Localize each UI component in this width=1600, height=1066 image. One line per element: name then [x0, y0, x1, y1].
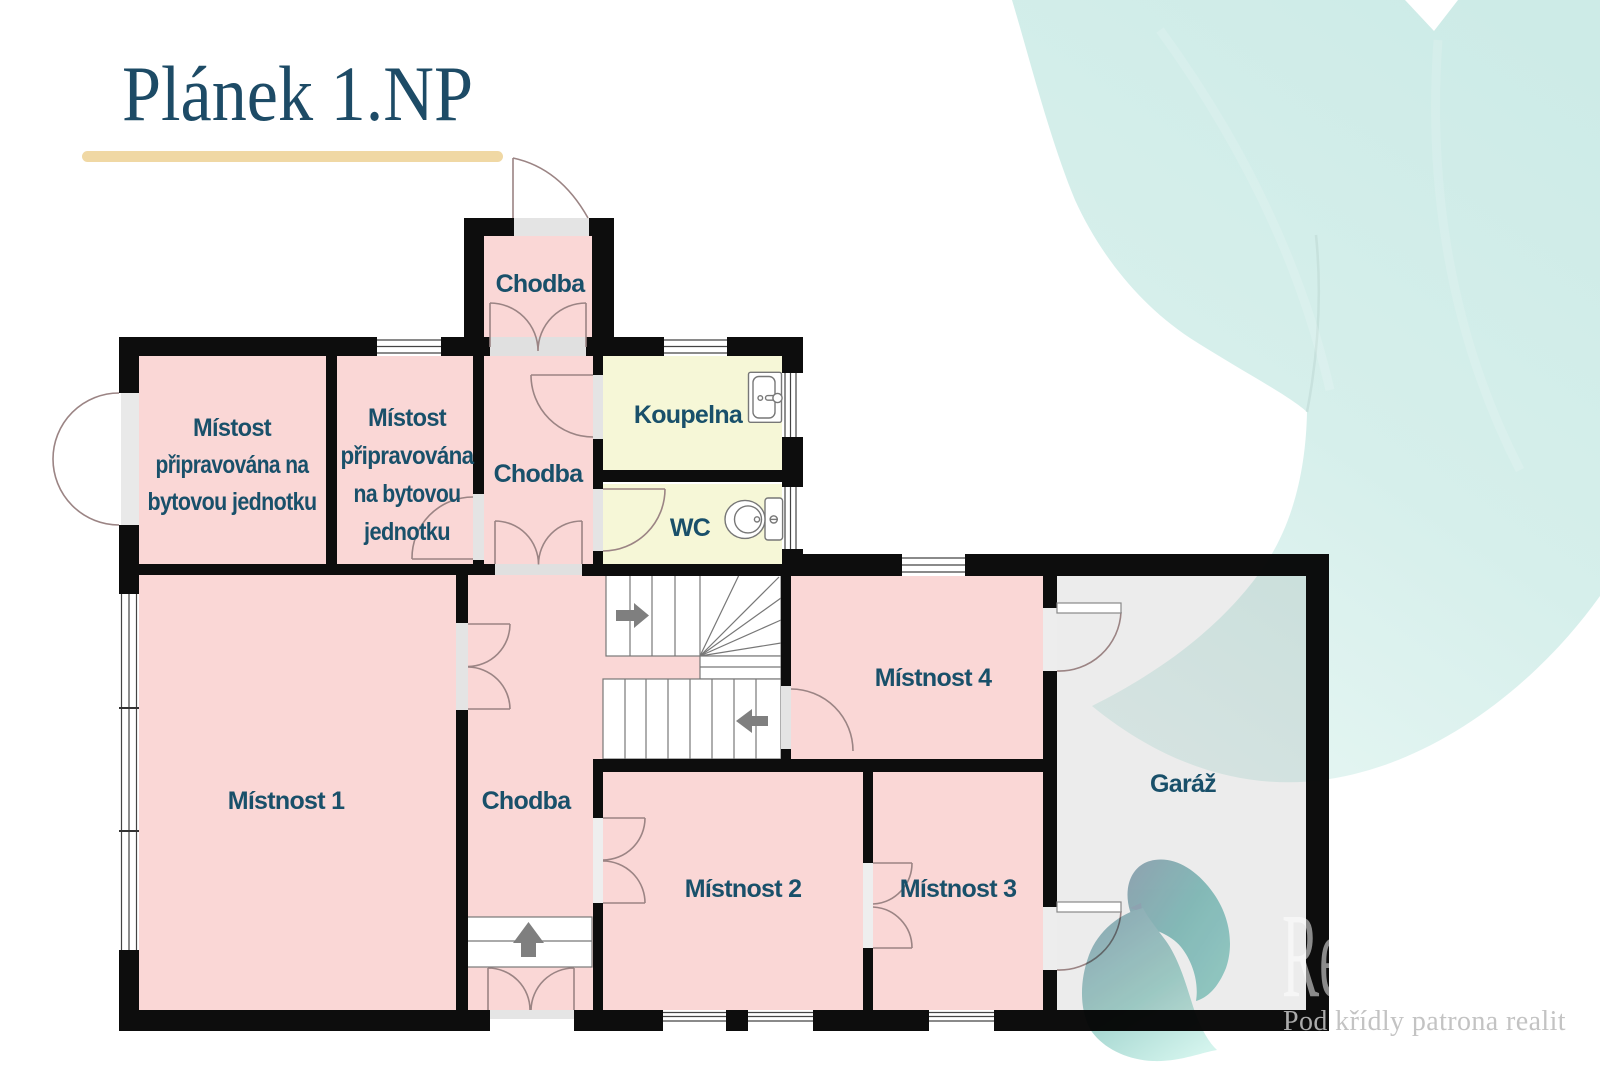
- svg-text:Pod křídly patrona realit: Pod křídly patrona realit: [1283, 1006, 1566, 1037]
- svg-text:Re: Re: [1282, 889, 1344, 1023]
